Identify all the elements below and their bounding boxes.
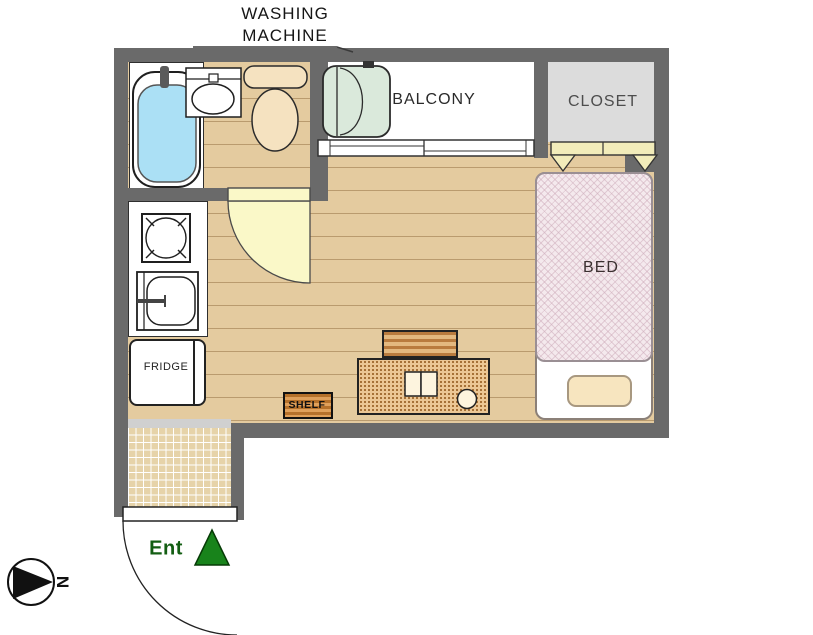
closet-door-marker-left — [551, 155, 575, 171]
closet-door-marker-right — [633, 155, 657, 171]
bathtub-faucet-icon — [160, 66, 169, 88]
bathroom-door-swing — [228, 201, 310, 283]
laptop-right-half — [421, 372, 437, 396]
laptop-left-half — [405, 372, 421, 396]
entrance-door — [123, 507, 237, 521]
fixtures-layer — [0, 0, 813, 635]
kitchen-faucet-icon — [137, 299, 166, 303]
bathroom-door — [228, 188, 310, 201]
balcony-window — [318, 140, 534, 156]
wash-basin-bowl — [192, 84, 234, 114]
washing-machine-leader-line — [193, 47, 353, 52]
washing-machine-hookup-icon — [363, 61, 374, 68]
wash-basin-tap-icon — [209, 74, 218, 82]
floor-plan: WASHING MACHINE BALCONY CLOSET BED FRIDG… — [0, 0, 813, 635]
washing-machine — [323, 66, 390, 137]
toilet-tank — [244, 66, 307, 88]
entrance-door-swing-arc — [123, 521, 237, 635]
entrance-arrow-icon — [195, 530, 229, 565]
toilet-bowl — [252, 89, 298, 151]
cup-icon — [458, 390, 477, 409]
